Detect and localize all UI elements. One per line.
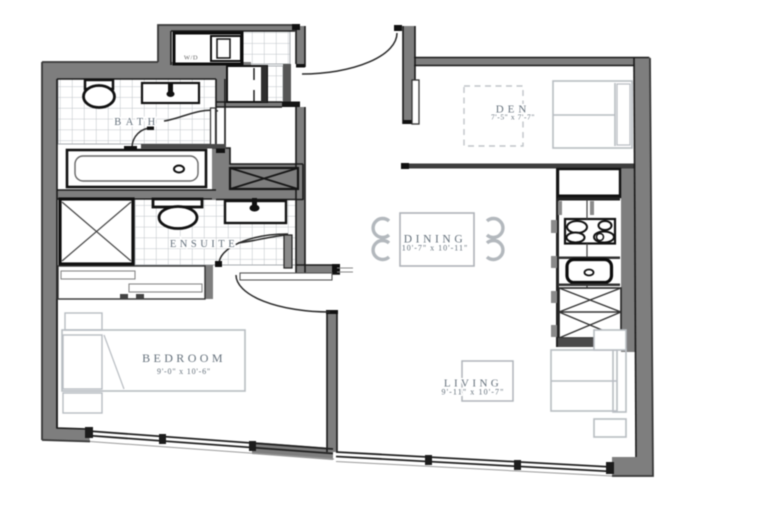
svg-text:ENSUITE: ENSUITE xyxy=(170,239,238,250)
svg-text:W/D: W/D xyxy=(184,55,198,62)
svg-text:9'-0" x 10'-6": 9'-0" x 10'-6" xyxy=(157,367,211,376)
svg-text:10'-7" x 10'-11": 10'-7" x 10'-11" xyxy=(402,244,468,253)
svg-text:BATH: BATH xyxy=(114,117,159,128)
svg-text:BEDROOM: BEDROOM xyxy=(142,351,226,365)
svg-text:9'-11" x 10'-7": 9'-11" x 10'-7" xyxy=(442,388,505,397)
svg-text:7'-5" x 7'-7": 7'-5" x 7'-7" xyxy=(491,113,535,122)
